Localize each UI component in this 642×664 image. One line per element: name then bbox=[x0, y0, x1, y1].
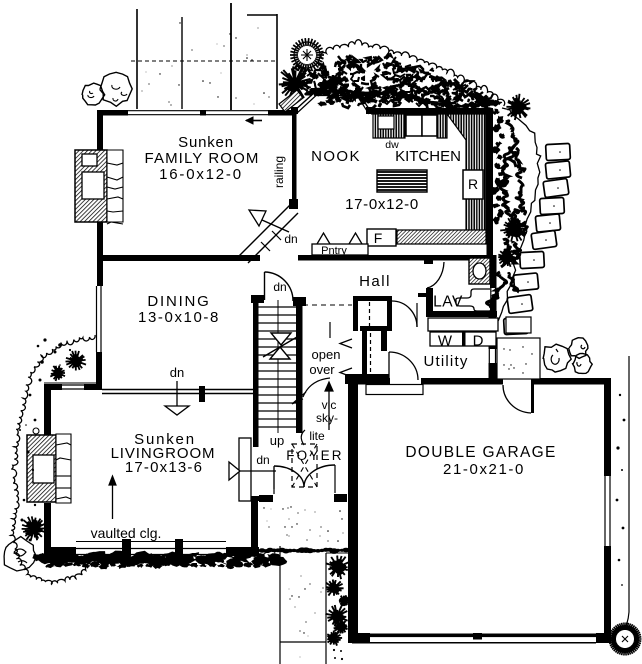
svg-text:dn: dn bbox=[256, 453, 269, 467]
svg-text:NOOK: NOOK bbox=[311, 148, 361, 165]
svg-text:R: R bbox=[468, 176, 478, 192]
svg-text:17-0x12-0: 17-0x12-0 bbox=[345, 196, 419, 213]
svg-text:21-0x21-0: 21-0x21-0 bbox=[443, 461, 525, 478]
svg-text:dn: dn bbox=[170, 365, 184, 380]
svg-text:sky-: sky- bbox=[316, 411, 338, 425]
svg-text:Hall: Hall bbox=[359, 273, 391, 290]
svg-text:open: open bbox=[312, 347, 341, 362]
svg-text:W: W bbox=[438, 333, 453, 350]
svg-text:dn: dn bbox=[284, 232, 297, 246]
svg-text:dn: dn bbox=[273, 280, 286, 294]
svg-text:Utility: Utility bbox=[423, 353, 468, 370]
svg-text:DINING: DINING bbox=[147, 293, 210, 310]
svg-text:lite: lite bbox=[309, 429, 325, 443]
svg-text:16-0x12-0: 16-0x12-0 bbox=[159, 166, 243, 183]
svg-text:FAMILY ROOM: FAMILY ROOM bbox=[145, 150, 260, 167]
svg-text:Pntry: Pntry bbox=[321, 245, 347, 257]
svg-text:13-0x10-8: 13-0x10-8 bbox=[138, 309, 220, 326]
svg-text:vaulted clg.: vaulted clg. bbox=[91, 525, 162, 541]
svg-text:over: over bbox=[309, 362, 335, 377]
svg-text:railing: railing bbox=[272, 156, 286, 188]
svg-text:DOUBLE GARAGE: DOUBLE GARAGE bbox=[405, 444, 556, 461]
svg-text:up: up bbox=[270, 433, 284, 448]
svg-text:F: F bbox=[374, 230, 383, 246]
svg-text:Sunken: Sunken bbox=[178, 134, 234, 151]
svg-text:dw: dw bbox=[385, 139, 399, 151]
svg-text:FOYER: FOYER bbox=[286, 448, 344, 463]
svg-text:LAV: LAV bbox=[433, 294, 463, 311]
svg-text:KITCHEN: KITCHEN bbox=[395, 148, 461, 165]
svg-text:D: D bbox=[473, 333, 484, 350]
svg-text:17-0x13-6: 17-0x13-6 bbox=[125, 459, 203, 476]
svg-text:vlc: vlc bbox=[322, 398, 337, 412]
